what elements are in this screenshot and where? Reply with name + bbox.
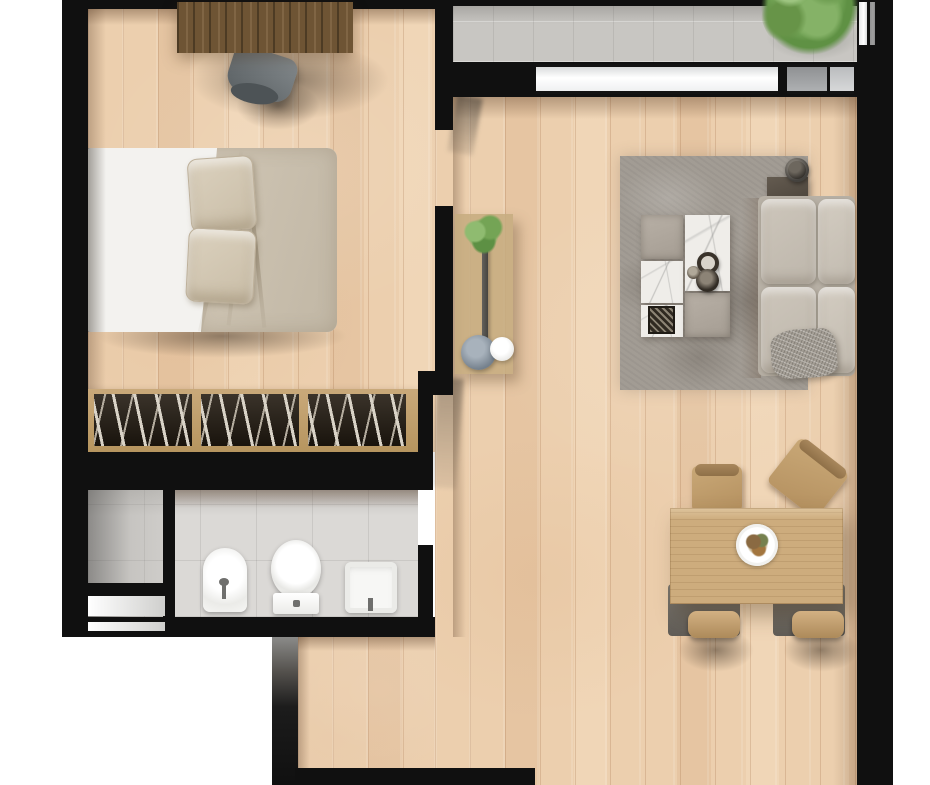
- wall-entry-left: [272, 637, 298, 785]
- wall-shower-bar: [87, 583, 165, 596]
- window-side-panel: [870, 2, 875, 45]
- bookshelf-compartment: [308, 394, 406, 446]
- bookshelf: [88, 389, 418, 452]
- desk: [177, 2, 353, 53]
- bidet-tap-head: [219, 578, 229, 586]
- throw-blanket: [770, 327, 838, 379]
- window-glass-gray: [787, 64, 827, 94]
- sofa-seat-cushion: [761, 199, 816, 284]
- coffee-table-marble-module: [641, 261, 683, 303]
- wall-corner-stub: [418, 371, 453, 395]
- washbasin-tap: [368, 598, 373, 611]
- console-pole: [482, 250, 488, 340]
- wall-left: [62, 0, 88, 637]
- entry-floor: [298, 637, 435, 785]
- coffee-table-fabric-module: [685, 293, 730, 337]
- bookshelf-compartment: [94, 394, 192, 446]
- wall-right: [857, 0, 893, 785]
- pillow: [185, 227, 257, 304]
- dining-chair-backrest: [688, 611, 740, 638]
- toilet-flush-button: [293, 600, 300, 607]
- table-lamp: [785, 158, 809, 182]
- dining-chair: [692, 466, 742, 512]
- wall-entry-bottom: [295, 768, 535, 785]
- shower-door-panel: [88, 622, 165, 631]
- round-vase: [490, 337, 514, 361]
- decor-tray: [648, 306, 675, 334]
- sofa-back-cushion: [818, 199, 855, 284]
- headboard-shadow: [88, 148, 106, 332]
- toilet-bowl: [271, 540, 321, 598]
- shower-door-panel: [88, 596, 165, 616]
- window-side-panel: [859, 2, 867, 45]
- floor-plan: [0, 0, 930, 785]
- window-glass-main: [536, 64, 778, 94]
- dining-chair-backrest: [792, 611, 844, 638]
- wall-bedroom-bathroom: [62, 452, 433, 490]
- dining-chair-backrest: [695, 464, 739, 476]
- decor-bowl: [687, 266, 700, 279]
- bookshelf-compartment: [201, 394, 299, 446]
- window-glass-light: [830, 64, 854, 94]
- coffee-table-fabric-module: [641, 215, 683, 259]
- console-plant: [461, 214, 505, 256]
- pillow: [186, 155, 257, 233]
- plate-food: [744, 531, 771, 558]
- wall-bedroom-hall-lower: [435, 206, 453, 380]
